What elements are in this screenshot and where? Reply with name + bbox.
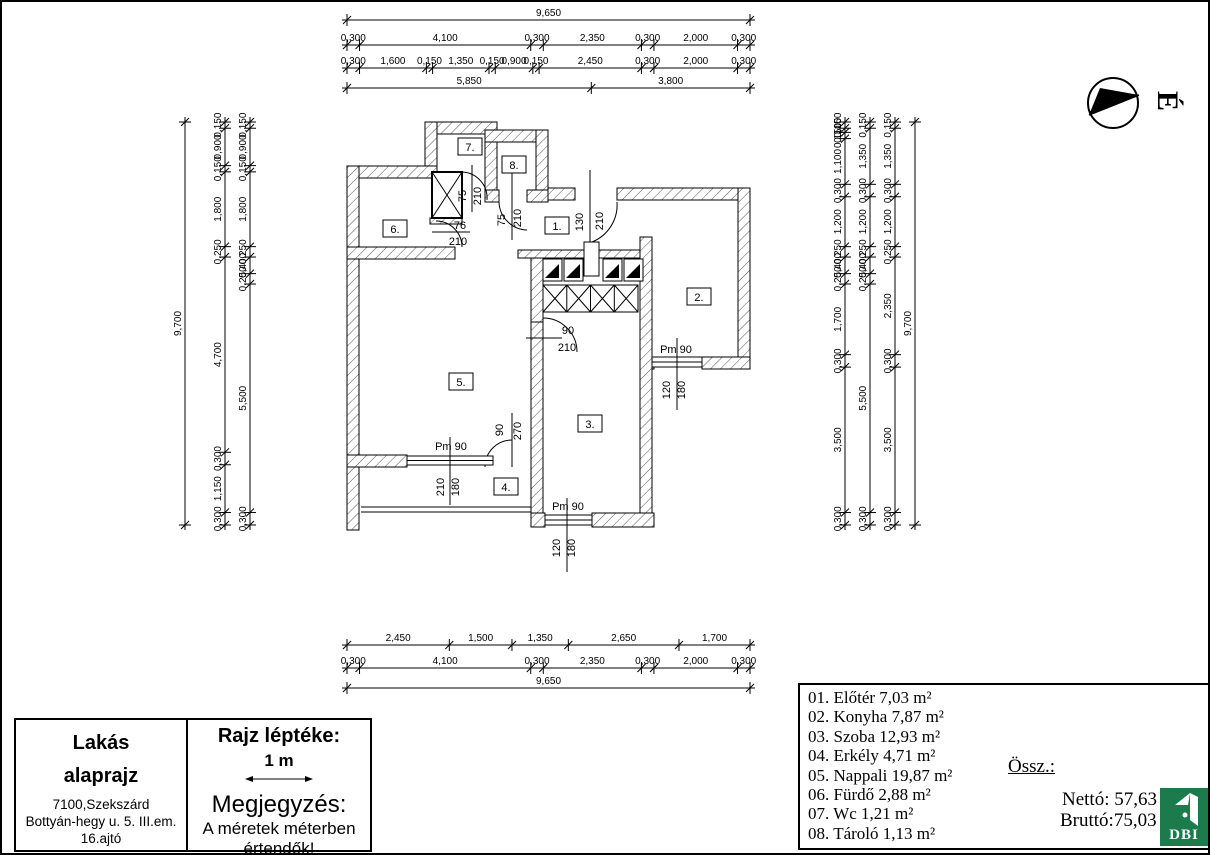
svg-text:0,150: 0,150 [858,112,869,137]
door-size: 210 [558,342,576,354]
wall-segment [347,166,437,178]
window-room3: Pm 90 120 180 [545,498,592,572]
svg-text:0,300: 0,300 [833,178,844,203]
svg-text:0,900: 0,900 [238,134,249,159]
wall-segment [531,258,543,322]
legend-item: 02. Konyha 7,87 m² [808,707,952,726]
dim-top-row3: 0,3001,6000,1501,3500,1500,9000,1502,450… [341,56,757,74]
legend-item: 08. Tároló 1,13 m² [808,824,952,843]
window-size: 180 [450,478,462,496]
legend-brutto: Bruttó:75,03 [1060,811,1157,830]
wall-segment [347,166,359,530]
door-size: 90 [494,424,506,436]
svg-text:0,150: 0,150 [238,156,249,181]
address-line1: 7100,Szekszárd [16,796,186,813]
svg-text:2,450: 2,450 [386,633,411,644]
legend-item: 01. Előtér 7,03 m² [808,688,952,707]
svg-text:1,600: 1,600 [380,56,405,67]
window-sill-label: Pm 90 [660,344,692,356]
window-size: 120 [551,539,563,557]
svg-text:0,300: 0,300 [341,56,366,67]
svg-text:5,500: 5,500 [858,385,869,410]
svg-text:0,300: 0,300 [833,348,844,373]
svg-text:0,300: 0,300 [635,33,660,44]
svg-text:7.: 7. [465,142,474,154]
door-size: 270 [512,422,524,440]
entry-door-leaf [584,242,599,276]
svg-text:3,500: 3,500 [883,427,894,452]
svg-text:1,800: 1,800 [213,196,224,221]
svg-text:0,900: 0,900 [213,134,224,159]
svg-text:0,250: 0,250 [883,239,894,264]
dim-left-col3: 0,1500,9000,1501,8000,2500,4000,2505,500… [238,112,256,531]
title-block: Lakás alaprajz 7100,Szekszárd Bottyán-he… [14,718,372,852]
note-title: Megjegyzés: [188,791,370,819]
scale-bar [244,774,314,784]
drawing-title-line2: alaprajz [16,765,186,788]
floor-plan-sheet: 75 210 76 210 75 210 130 210 90 210 [0,0,1210,855]
svg-text:0,150: 0,150 [883,112,894,137]
svg-text:0,250: 0,250 [858,266,869,291]
svg-text:2,450: 2,450 [578,56,603,67]
door-storage: 75 210 [496,165,527,240]
svg-text:0,300: 0,300 [858,178,869,203]
svg-text:2,000: 2,000 [683,56,708,67]
scale-label: Rajz léptéke: [188,725,370,748]
svg-text:0,300: 0,300 [341,656,366,667]
door-size: 90 [562,325,574,337]
svg-text:0,250: 0,250 [833,266,844,291]
svg-text:0,300: 0,300 [833,506,844,531]
room-label-3: 3. [578,415,602,432]
svg-text:2,000: 2,000 [683,656,708,667]
svg-text:2,350: 2,350 [580,33,605,44]
svg-text:0,300: 0,300 [213,446,224,471]
svg-text:2,350: 2,350 [883,293,894,318]
legend-item: 07. Wc 1,21 m² [808,804,952,823]
svg-text:1,350: 1,350 [528,633,553,644]
svg-text:0,150: 0,150 [833,123,844,148]
dim-right-colB: 0,1501,3500,3001,2000,2500,4000,2505,500… [858,112,876,531]
svg-text:2,350: 2,350 [580,656,605,667]
window-size: 180 [566,539,578,557]
svg-text:2,000: 2,000 [683,33,708,44]
dim-right-overall: 9,700 [903,117,921,530]
svg-text:2,650: 2,650 [611,633,636,644]
svg-text:3,500: 3,500 [833,427,844,452]
note-line2: értendők! [188,839,370,855]
svg-text:0,150: 0,150 [523,56,548,67]
svg-text:1.: 1. [552,221,561,233]
svg-text:9,700: 9,700 [173,311,184,336]
dim-right-colC: 0,1501,3500,3001,2000,2502,3500,3003,500… [883,112,901,531]
svg-text:5,500: 5,500 [238,385,249,410]
svg-text:0,300: 0,300 [883,348,894,373]
svg-text:1,100: 1,100 [833,149,844,174]
legend-item: 06. Fürdő 2,88 m² [808,785,952,804]
wall-segment [592,513,654,527]
svg-text:8.: 8. [509,160,518,172]
dim-top-row2: 0,3004,1000,3002,3500,3002,0000,300 [341,33,757,51]
svg-text:1,200: 1,200 [883,209,894,234]
legend-netto: Nettó: 57,63 [1062,790,1157,809]
svg-text:9,650: 9,650 [536,676,561,687]
svg-text:0,300: 0,300 [524,656,549,667]
address-line3: 16.ajtó [16,830,186,847]
window-size: 180 [676,381,688,399]
svg-text:0,300: 0,300 [858,506,869,531]
wall-segment [548,188,575,200]
room-label-8: 8. [502,156,526,173]
wall-segment [347,455,407,467]
wall-segment [347,247,455,259]
svg-text:0,150: 0,150 [238,112,249,137]
scale-value: 1 m [188,751,370,771]
svg-text:0,300: 0,300 [635,656,660,667]
dim-top-overall: 9,650 [342,8,755,26]
svg-text:1,200: 1,200 [858,209,869,234]
room-label-6: 6. [383,220,407,237]
door-size: 210 [512,209,524,227]
window-size: 210 [435,478,447,496]
svg-text:1,800: 1,800 [238,196,249,221]
window-living: Pm 90 210 180 [407,437,493,505]
svg-text:0,300: 0,300 [213,506,224,531]
dim-right-colA: 0,1500,1000,1501,1000,3001,2000,2500,400… [833,112,851,531]
svg-text:1,700: 1,700 [702,633,727,644]
svg-text:4.: 4. [501,482,510,494]
svg-text:0,300: 0,300 [524,33,549,44]
dim-bottom-overall: 9,650 [342,676,755,694]
dbi-logo-text: DBI [1160,826,1208,845]
room-label-4: 4. [494,478,518,495]
svg-text:5,850: 5,850 [457,76,482,87]
svg-text:1,500: 1,500 [468,633,493,644]
wall-segment [531,513,545,527]
room-legend: 01. Előtér 7,03 m² 02. Konyha 7,87 m² 03… [798,683,1210,850]
svg-text:5.: 5. [456,377,465,389]
svg-text:9,700: 9,700 [903,311,914,336]
legend-item: 03. Szoba 12,93 m² [808,727,952,746]
svg-text:6.: 6. [390,224,399,236]
dbi-logo: DBI [1160,788,1208,846]
wall-segment [518,250,643,258]
dim-top-row4: 5,8503,800 [342,76,755,94]
title-block-right: Rajz léptéke: 1 m Megjegyzés: A méretek … [188,720,370,850]
svg-text:1,700: 1,700 [833,306,844,331]
wall-segment [527,190,548,202]
wall-segment [702,357,750,369]
title-block-left: Lakás alaprajz 7100,Szekszárd Bottyán-he… [16,720,188,850]
wall-segment [531,322,543,527]
svg-text:1,200: 1,200 [833,209,844,234]
note-line1: A méretek méterben [188,819,370,839]
dim-left-col2: 0,1500,9000,1501,8000,2504,7000,3001,150… [213,112,231,531]
svg-text:0,300: 0,300 [341,33,366,44]
door-size: 76 [454,220,466,232]
svg-text:1,350: 1,350 [858,143,869,168]
address-line2: Bottyán-hegy u. 5. III.em. [16,813,186,830]
svg-text:1,350: 1,350 [448,56,473,67]
room-legend-list: 01. Előtér 7,03 m² 02. Konyha 7,87 m² 03… [808,688,952,843]
svg-text:4,700: 4,700 [213,342,224,367]
north-compass: É [1088,78,1184,128]
svg-text:0,300: 0,300 [731,656,756,667]
svg-text:0,250: 0,250 [238,266,249,291]
wall-segment [738,188,750,369]
svg-text:0,300: 0,300 [238,506,249,531]
svg-text:0,300: 0,300 [883,178,894,203]
door-size: 210 [472,187,484,205]
window-kitchen: Pm 90 120 180 [652,338,702,410]
svg-text:3.: 3. [585,419,594,431]
svg-text:0,150: 0,150 [417,56,442,67]
svg-text:0,300: 0,300 [731,33,756,44]
room-label-1: 1. [545,217,569,234]
svg-text:0,300: 0,300 [635,56,660,67]
svg-text:4,100: 4,100 [433,656,458,667]
svg-text:4,100: 4,100 [433,33,458,44]
north-label: É [1151,91,1184,111]
door-size: 210 [594,212,606,230]
svg-text:0,150: 0,150 [213,156,224,181]
door-size: 130 [574,213,586,231]
wall-segment [617,188,750,200]
door-size: 75 [457,190,469,202]
door-size: 75 [496,214,508,226]
dim-left-overall: 9,700 [173,117,191,530]
svg-text:2.: 2. [694,292,703,304]
svg-text:9,650: 9,650 [536,8,561,19]
svg-text:0,300: 0,300 [731,56,756,67]
legend-item: 04. Erkély 4,71 m² [808,746,952,765]
room-label-5: 5. [449,373,473,390]
room-label-7: 7. [458,138,482,155]
svg-text:0,150: 0,150 [213,112,224,137]
svg-text:1,350: 1,350 [883,143,894,168]
window-sill-label: Pm 90 [435,441,467,453]
dim-bottom-row2: 0,3004,1000,3002,3500,3002,0000,300 [341,656,757,674]
dim-bottom-row1: 2,4501,5001,3502,6501,700 [342,633,755,651]
walls [347,122,750,530]
svg-text:3,800: 3,800 [658,76,683,87]
drawing-title-line1: Lakás [16,732,186,755]
svg-text:0,250: 0,250 [213,239,224,264]
svg-text:1,150: 1,150 [213,476,224,501]
window-size: 120 [661,381,673,399]
room-label-2: 2. [687,288,711,305]
svg-text:0,300: 0,300 [883,506,894,531]
legend-total-label: Össz.: [1008,757,1055,776]
legend-item: 05. Nappali 19,87 m² [808,766,952,785]
door-size: 210 [449,236,467,248]
window-sill-label: Pm 90 [552,501,584,513]
